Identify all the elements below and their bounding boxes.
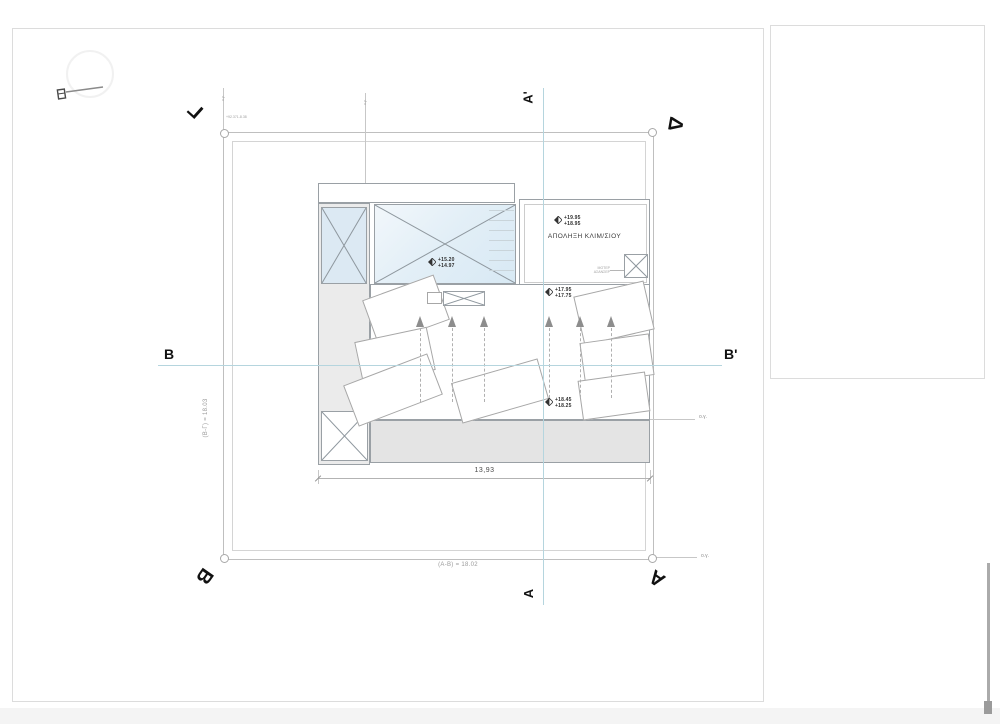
edge-dimension-bottom: (Α-Β) = 18.02 [398, 562, 518, 568]
og-note-bottom: ο.γ. [701, 553, 709, 559]
level-marker-roof-upper: +17.95+17.75 [545, 288, 572, 299]
motor-label: ΜΟΤΕΡ ΑΣΑΝΣΕΡ [582, 266, 610, 274]
roof-object-small [427, 292, 442, 304]
edge-dimension-left: (Β-Γ) = 18.03 [203, 378, 209, 458]
slope-arrow-icon [416, 316, 424, 327]
slope-arrow-icon [448, 316, 456, 327]
slope-arrow-stem [611, 328, 612, 398]
slope-arrow-icon [545, 316, 553, 327]
lower-terrace-band [370, 420, 650, 463]
og-note-mid: ο.γ. [699, 414, 707, 420]
corner-marker-top-left [220, 129, 229, 138]
slope-arrow-stem [549, 328, 550, 398]
level-marker-skylight: +15.20+14.97 [428, 258, 455, 269]
corner-marker-bottom-left [220, 554, 229, 563]
drawing-viewer: ο.γ. ο.γ. ο.γ. ο.γ. +92.371-8.38 ΑΠΟΛΗΞΗ… [0, 0, 1000, 724]
secondary-sheet [770, 25, 985, 379]
og-note-guide1: ο.γ. [221, 87, 225, 101]
bottom-strip [0, 708, 1000, 724]
og-extension-line [650, 419, 695, 420]
og-note-guide2: ο.γ. [363, 91, 367, 105]
parapet-top-band [318, 183, 515, 203]
dimension-line [318, 478, 651, 479]
section-label-b: Β [164, 346, 174, 362]
boundary-extension-bottom [652, 557, 697, 558]
section-line-a [543, 88, 544, 605]
slope-arrow-icon [607, 316, 615, 327]
corner-marker-bottom-right [648, 554, 657, 563]
survey-note: +92.371-8.38 [226, 115, 247, 119]
level-marker-stair-room: +19.95+18.95 [554, 216, 581, 227]
vent-box [443, 291, 485, 306]
benchmark-icon [545, 398, 553, 406]
vertical-scrollbar[interactable] [987, 563, 990, 703]
elevator-motor-box [624, 254, 648, 278]
section-label-b-prime: Β' [724, 346, 737, 362]
motor-leader-line [610, 270, 624, 271]
benchmark-icon [545, 288, 553, 296]
slope-arrow-stem [580, 328, 581, 398]
building-width-dimension: 13,93 [318, 467, 651, 474]
benchmark-icon [428, 258, 436, 266]
slope-arrow-icon [480, 316, 488, 327]
slope-arrow-icon [576, 316, 584, 327]
section-label-a: Α [521, 589, 536, 598]
north-arrow-icon [55, 80, 107, 102]
section-label-a-prime: Α' [521, 91, 536, 103]
benchmark-icon [554, 216, 562, 224]
level-marker-roof-lower: +18.45+18.25 [545, 398, 572, 409]
corner-marker-top-right [648, 128, 657, 137]
skylight-box-small [321, 207, 367, 284]
section-line-b [158, 365, 722, 366]
scrollbar-foot[interactable] [984, 701, 992, 714]
stair-treads [489, 210, 514, 280]
